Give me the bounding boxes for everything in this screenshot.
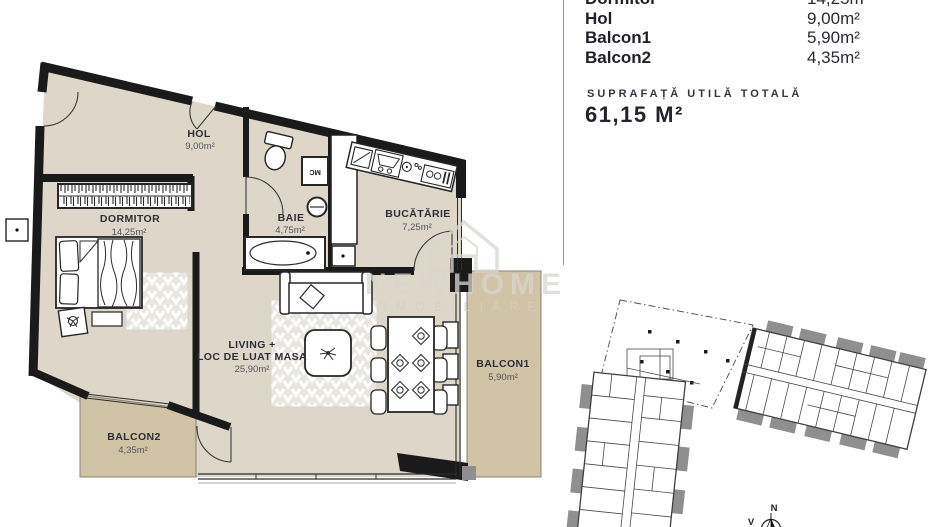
room-area-living: 25,90m² [235, 364, 270, 375]
row-value: 14,25m² [807, 0, 869, 9]
washing-machine: MC [302, 157, 328, 185]
room-label-balcon2: BALCON2 [107, 431, 161, 443]
area-table: Dormitor 14,25m² Hol 9,00m² Balcon1 5,90… [585, 0, 915, 67]
sink [308, 198, 327, 217]
row-value: 4,35m² [807, 48, 860, 68]
plant-table [58, 307, 87, 336]
room-label-living-1: LIVING + [228, 339, 275, 351]
floor-plan-image: MC [0, 0, 938, 527]
wc-closet-label: MC [309, 168, 321, 177]
row-value: 5,90m² [807, 28, 860, 48]
wardrobe [58, 184, 192, 208]
watermark-subtitle: IMOBILIARE [383, 300, 545, 314]
room-area-hol: 9,00m² [185, 141, 215, 152]
bench [92, 312, 122, 326]
coffee-table [305, 330, 351, 376]
building-wing-left [565, 371, 696, 527]
row-value: 9,00m² [807, 9, 860, 29]
total-area-label: SUPRAFAȚĂ UTILĂ TOTALĂ [587, 88, 802, 100]
panel-divider [563, 0, 564, 265]
compass: N V [748, 503, 781, 527]
room-label-dormitor: DORMITOR [100, 213, 160, 225]
table-row: Balcon2 4,35m² [585, 48, 915, 68]
room-label-living-2: LOC DE LUAT MASA [197, 351, 307, 363]
room-label-balcon1: BALCON1 [476, 358, 530, 370]
table-row: Balcon1 5,90m² [585, 28, 915, 48]
compass-west-label: V [748, 517, 755, 527]
building-wing-right [731, 317, 928, 460]
site-plan: N V [565, 300, 929, 527]
total-area-value: 61,15 M² [585, 102, 684, 128]
table-row: Hol 9,00m² [585, 9, 915, 29]
room-label-hol: HOL [187, 128, 211, 140]
compass-north-label: N [771, 503, 778, 514]
row-label: Dormitor [585, 0, 657, 8]
exterior-shaft-box [6, 219, 28, 241]
room-area-balcon2: 4,35m² [118, 445, 148, 456]
room-area-bucatarie: 7,25m² [402, 222, 432, 233]
room-area-balcon1: 5,90m² [488, 372, 518, 383]
bathtub [245, 237, 325, 270]
sofa [280, 272, 372, 314]
floorplan-page: MC [0, 0, 938, 527]
bed [56, 237, 142, 308]
room-label-bucatarie: BUCĂTĂRIE [385, 207, 450, 220]
room-area-baie: 4,75m² [275, 225, 305, 236]
row-label: Balcon2 [585, 48, 651, 67]
watermark-brand: NEWHOME [365, 268, 567, 301]
table-row: Dormitor 14,25m² [585, 0, 915, 9]
apartment-plan: MC [6, 63, 567, 483]
row-label: Hol [585, 9, 612, 28]
room-area-dormitor: 14,25m² [112, 227, 147, 238]
room-label-baie: BAIE [278, 212, 305, 224]
row-label: Balcon1 [585, 28, 651, 47]
dining-set [371, 317, 447, 414]
